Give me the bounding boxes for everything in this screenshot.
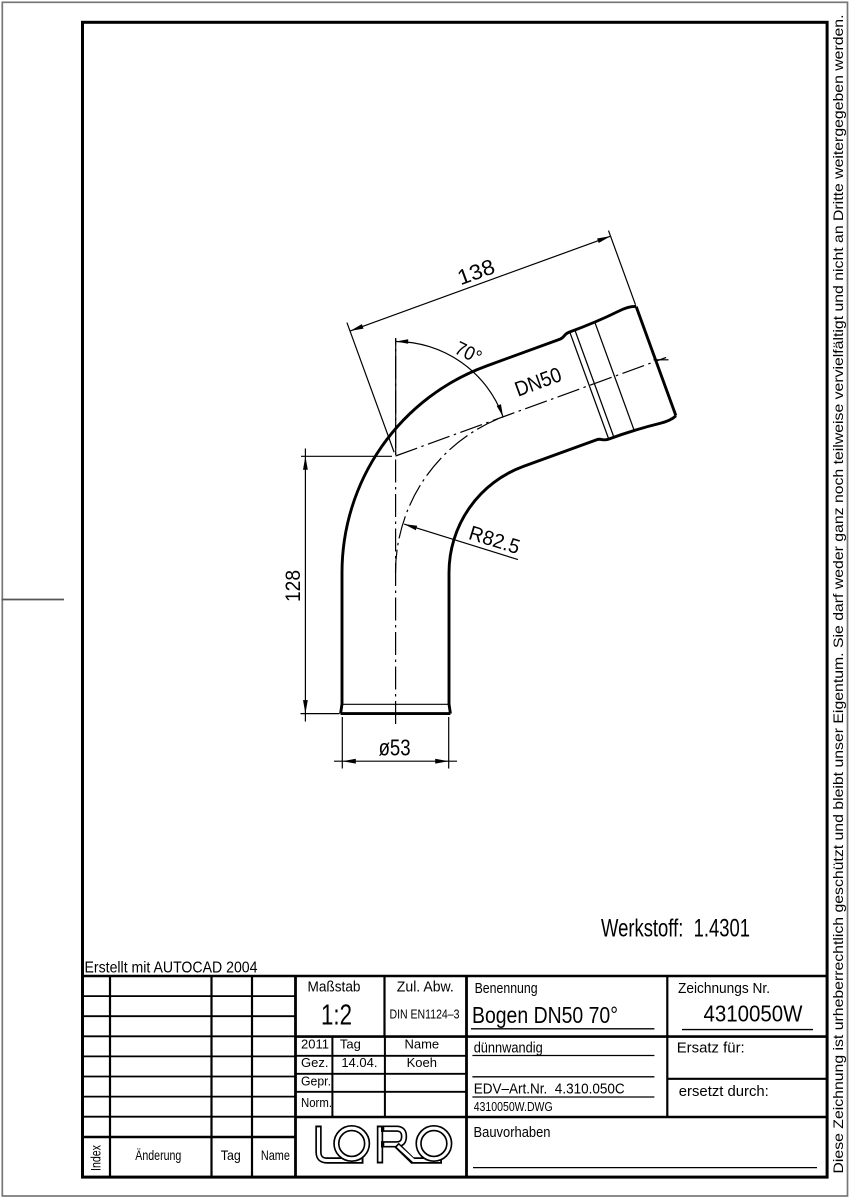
svg-text:4310050W.DWG: 4310050W.DWG bbox=[474, 1100, 553, 1114]
svg-text:Ersatz für:: Ersatz für: bbox=[677, 1040, 745, 1057]
svg-text:Name: Name bbox=[261, 1147, 290, 1163]
svg-text:128: 128 bbox=[281, 570, 305, 602]
svg-text:Änderung: Änderung bbox=[135, 1147, 181, 1163]
svg-text:Index: Index bbox=[89, 1145, 104, 1171]
svg-text:Koeh: Koeh bbox=[407, 1055, 437, 1070]
svg-text:EDV–Art.Nr. 4.310.050C: EDV–Art.Nr. 4.310.050C bbox=[474, 1081, 625, 1098]
svg-text:4310050W: 4310050W bbox=[704, 1001, 803, 1027]
svg-text:Zul. Abw.: Zul. Abw. bbox=[397, 980, 454, 996]
svg-text:Gepr.: Gepr. bbox=[301, 1074, 331, 1089]
svg-text:Gez.: Gez. bbox=[301, 1055, 328, 1070]
svg-text:Tag: Tag bbox=[340, 1037, 361, 1052]
svg-text:14.04.: 14.04. bbox=[341, 1055, 377, 1070]
svg-text:Maßstab: Maßstab bbox=[308, 980, 361, 996]
svg-text:Zeichnungs Nr.: Zeichnungs Nr. bbox=[678, 981, 770, 997]
svg-text:Tag: Tag bbox=[221, 1147, 241, 1163]
svg-text:dünnwandig: dünnwandig bbox=[474, 1040, 543, 1057]
svg-text:ø53: ø53 bbox=[379, 735, 411, 761]
svg-text:Name: Name bbox=[404, 1037, 439, 1052]
svg-text:1:2: 1:2 bbox=[321, 1000, 352, 1032]
svg-text:Werkstoff: 1.4301: Werkstoff: 1.4301 bbox=[601, 915, 750, 943]
svg-text:Erstellt mit AUTOCAD 2004: Erstellt mit AUTOCAD 2004 bbox=[85, 960, 258, 977]
svg-text:2011: 2011 bbox=[301, 1037, 329, 1052]
svg-text:Diese Zeichnung ist urheberrec: Diese Zeichnung ist urheberrechtlich ges… bbox=[830, 15, 846, 1174]
svg-text:Bauvorhaben: Bauvorhaben bbox=[474, 1125, 551, 1141]
svg-text:DIN EN1124–3: DIN EN1124–3 bbox=[390, 1007, 460, 1022]
svg-text:Bogen DN50 70°: Bogen DN50 70° bbox=[472, 1002, 618, 1028]
svg-text:Benennung: Benennung bbox=[475, 981, 538, 997]
svg-text:Norm.: Norm. bbox=[301, 1095, 332, 1110]
svg-text:ersetzt durch:: ersetzt durch: bbox=[679, 1083, 769, 1100]
